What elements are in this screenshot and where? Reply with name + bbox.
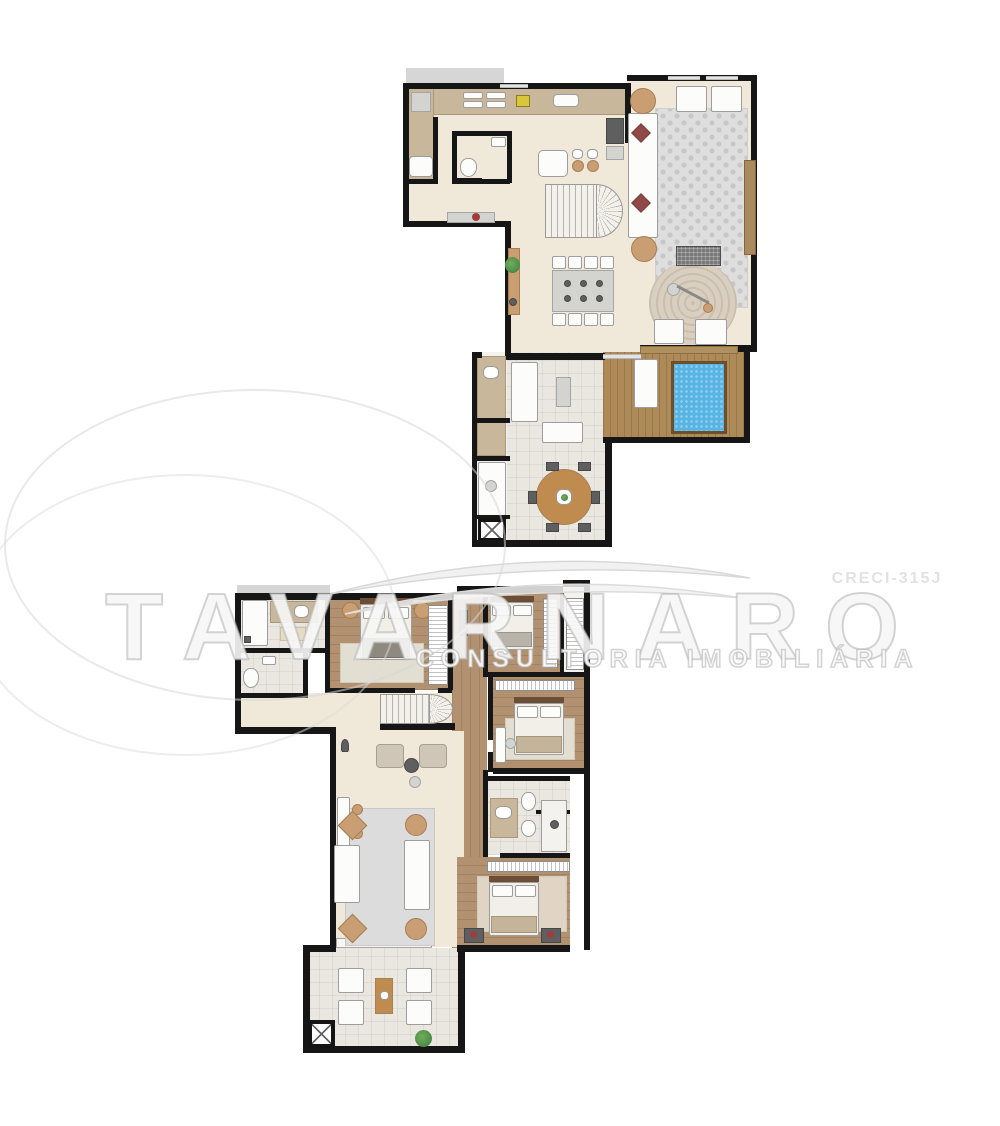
basin-icon: [495, 806, 512, 819]
table-center: [380, 991, 389, 1000]
wall: [493, 768, 588, 774]
wall: [458, 945, 465, 1053]
shelf-icon: [486, 92, 506, 99]
wall: [472, 418, 510, 423]
pillow: [517, 706, 538, 718]
sun-lounger: [634, 359, 658, 408]
dining-chair: [568, 256, 582, 269]
outdoor-chair: [578, 462, 591, 471]
loveseat: [376, 744, 404, 768]
plant-icon: [505, 257, 520, 273]
place-setting: [587, 149, 598, 159]
wall: [584, 680, 590, 950]
sofa: [334, 845, 360, 903]
cooktop-icon: [606, 118, 624, 144]
wall: [303, 945, 335, 952]
floor-lamp-icon: [341, 739, 349, 752]
decor-red-vase: [472, 213, 480, 221]
wardrobe: [495, 680, 575, 691]
outdoor-chair: [528, 491, 537, 504]
wall: [330, 688, 415, 693]
terrace-chair: [338, 1000, 364, 1025]
fridge-icon: [538, 150, 568, 177]
armchair: [676, 86, 707, 112]
wall: [488, 677, 493, 740]
wall: [457, 945, 570, 952]
shelf-icon: [463, 101, 483, 108]
wall: [452, 178, 482, 183]
wall: [483, 770, 488, 857]
dining-chair: [584, 313, 598, 326]
kitchen-sink-icon: [553, 94, 579, 107]
washer-icon: [409, 156, 433, 177]
service-shaft: [478, 519, 506, 541]
decor-item: [703, 303, 713, 313]
terrace-chair: [406, 1000, 432, 1025]
wall: [472, 456, 510, 461]
chaise-sofa: [404, 840, 430, 910]
plant-icon: [415, 1030, 432, 1047]
armchair: [695, 319, 727, 345]
service-shaft: [308, 1020, 335, 1048]
wall: [505, 353, 605, 360]
side-table: [556, 377, 571, 407]
plant-icon: [561, 494, 568, 501]
wall: [330, 727, 336, 952]
decor-red-vase: [547, 931, 554, 938]
window: [668, 76, 700, 80]
decor-item: [409, 776, 421, 788]
shelf-icon: [486, 101, 506, 108]
bar-stool: [587, 160, 599, 172]
wall: [603, 437, 750, 443]
dining-chair: [552, 256, 566, 269]
wall: [452, 131, 457, 183]
pouf: [405, 814, 427, 836]
wall: [433, 117, 438, 180]
wall: [487, 776, 570, 781]
wall: [240, 693, 308, 698]
outdoor-chair: [546, 523, 559, 532]
terrace-chair: [338, 968, 364, 993]
terrace-daybed: [511, 362, 538, 422]
wall: [403, 179, 438, 184]
watermark-tagline: CONSULTORIA IMOBILIÁRIA: [355, 645, 980, 674]
pillow: [515, 885, 536, 897]
plate: [564, 295, 571, 302]
floorplan-canvas: CRECI-315J TAVARNARO CONSULTORIA IMOBILI…: [0, 0, 1000, 1126]
outdoor-chair: [546, 462, 559, 471]
shower-drain-icon: [485, 480, 497, 492]
shelf-icon: [463, 92, 483, 99]
toilet-icon: [521, 792, 536, 811]
pool: [671, 361, 727, 434]
tv-sideboard: [744, 160, 756, 255]
dining-chair: [600, 256, 614, 269]
desk-chair: [505, 738, 516, 749]
dining-chair: [552, 313, 566, 326]
plate: [564, 280, 571, 287]
sideboard: [640, 346, 738, 354]
wall: [500, 853, 570, 858]
armchair: [711, 86, 742, 112]
armchair: [654, 319, 684, 344]
wall: [472, 515, 510, 519]
wall: [744, 352, 750, 443]
wardrobe: [487, 861, 570, 872]
plate: [596, 280, 603, 287]
pillow: [492, 885, 513, 897]
wall: [403, 83, 409, 227]
laundry-shelf: [447, 212, 495, 223]
shower-drain-icon: [550, 820, 559, 829]
dining-chair: [584, 256, 598, 269]
laundry-tank: [411, 92, 431, 112]
pillow: [540, 706, 561, 718]
outdoor-chair: [578, 523, 591, 532]
side-pouf: [630, 88, 656, 114]
stove-icon: [516, 95, 530, 107]
wall: [472, 352, 482, 358]
wall: [507, 131, 512, 183]
dining-chair: [568, 313, 582, 326]
bed-blanket: [516, 736, 562, 753]
wall: [235, 727, 335, 734]
window: [500, 84, 528, 88]
wc-sink-icon: [491, 137, 506, 147]
decor-vase: [509, 298, 517, 306]
wall: [605, 437, 612, 547]
side-pouf: [631, 236, 657, 262]
place-setting: [572, 149, 583, 159]
plate: [580, 295, 587, 302]
staircase: [380, 694, 430, 724]
game-table: [676, 246, 721, 266]
plate: [580, 280, 587, 287]
plate: [596, 295, 603, 302]
decor-red-vase: [470, 931, 477, 938]
dining-chair: [600, 313, 614, 326]
bed-blanket: [491, 916, 537, 933]
wall: [380, 723, 455, 730]
dining-table: [552, 270, 614, 312]
bidet-icon: [521, 820, 536, 837]
oven-icon: [606, 146, 624, 160]
window: [706, 76, 738, 80]
staircase: [545, 184, 597, 238]
pouf: [405, 918, 427, 940]
bar-stool: [572, 160, 584, 172]
terrace-chair: [406, 968, 432, 993]
outdoor-chair: [591, 491, 600, 504]
wall: [452, 131, 512, 136]
loveseat: [419, 744, 447, 768]
bench: [542, 422, 583, 443]
wall: [472, 540, 612, 547]
toilet-icon: [460, 158, 477, 177]
side-table: [404, 758, 419, 773]
basin-icon: [483, 366, 499, 379]
